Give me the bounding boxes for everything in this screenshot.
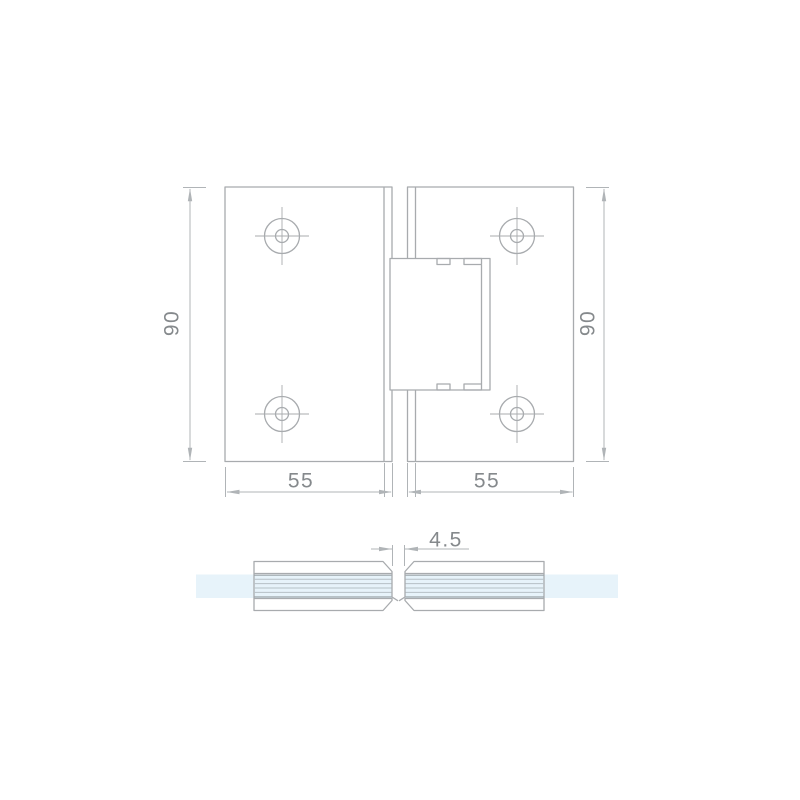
screw-hole-top-right	[490, 207, 544, 265]
front-view	[225, 187, 574, 462]
arrowhead-right	[560, 490, 573, 494]
screw-hole-bottom-right	[490, 385, 544, 443]
front-view-dimensions: 90 90 55 55	[161, 188, 610, 498]
left-clamp-top-plate	[254, 562, 392, 574]
dim-height-right: 90	[577, 188, 610, 462]
drawing-canvas: 90 90 55 55	[0, 0, 800, 800]
arrowhead-down	[188, 448, 192, 461]
dim-height-left: 90	[161, 188, 207, 462]
screw-hole-bottom-left	[255, 385, 309, 443]
glass-panel-left	[196, 575, 392, 599]
hinge-knuckle	[390, 259, 490, 391]
arrowhead-left	[227, 490, 240, 494]
screw-hole-top-left	[255, 207, 309, 265]
left-plate	[225, 187, 392, 462]
arrowhead-left	[405, 547, 418, 551]
arrowhead-up	[602, 188, 606, 201]
hinge-technical-drawing: 90 90 55 55	[0, 0, 800, 800]
dim-label-height-left: 90	[161, 310, 184, 336]
arrowhead-right	[379, 547, 392, 551]
dim-label-width-right: 55	[474, 470, 500, 493]
dim-width-left: 55	[226, 463, 393, 497]
left-clamp-bottom-plate	[254, 599, 392, 611]
glass-panel-right	[405, 575, 618, 599]
right-clamp-top-plate	[405, 562, 544, 574]
dim-gap: 4.5	[371, 529, 469, 567]
arrowhead-up	[188, 188, 192, 201]
dim-label-width-left: 55	[288, 470, 314, 493]
dim-label-height-right: 90	[577, 310, 600, 336]
knuckle-body	[390, 259, 490, 391]
gap-right-edge	[399, 574, 405, 601]
dim-label-gap: 4.5	[429, 529, 463, 552]
section-view: 4.5	[196, 529, 618, 611]
dim-width-right: 55	[408, 463, 574, 497]
right-clamp-bottom-plate	[405, 599, 544, 611]
gap-left-edge	[392, 574, 398, 601]
arrowhead-right	[379, 490, 392, 494]
pivot-gap	[392, 574, 405, 601]
arrowhead-down	[602, 448, 606, 461]
arrowhead-left	[408, 490, 421, 494]
